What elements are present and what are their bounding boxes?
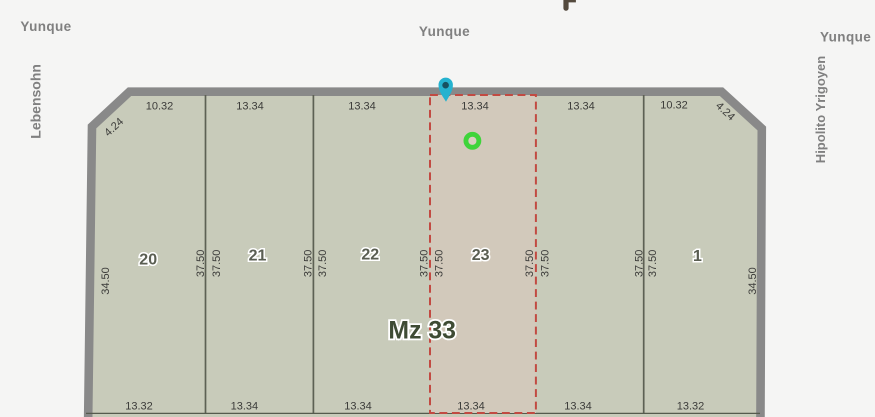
- svg-text:34.50: 34.50: [100, 267, 112, 295]
- svg-text:13.34: 13.34: [564, 401, 592, 413]
- svg-text:13.34: 13.34: [236, 101, 264, 113]
- svg-text:10.32: 10.32: [660, 100, 688, 112]
- svg-text:13.32: 13.32: [125, 401, 153, 413]
- svg-text:Yunque: Yunque: [419, 24, 470, 39]
- svg-text:Mz 33: Mz 33: [388, 318, 456, 345]
- svg-text:13.34: 13.34: [457, 401, 485, 413]
- svg-text:23: 23: [472, 247, 490, 264]
- svg-text:37.50: 37.50: [302, 250, 314, 278]
- svg-text:Hipolito Yrigoyen: Hipolito Yrigoyen: [813, 56, 828, 163]
- svg-text:37.50: 37.50: [317, 250, 329, 278]
- svg-text:34.50: 34.50: [747, 267, 759, 295]
- svg-text:1: 1: [693, 248, 702, 265]
- svg-text:37.50: 37.50: [195, 250, 207, 278]
- svg-text:20: 20: [139, 252, 157, 269]
- svg-text:37.50: 37.50: [634, 250, 646, 278]
- svg-text:10.32: 10.32: [146, 101, 174, 113]
- svg-text:Lebensohn: Lebensohn: [27, 64, 43, 139]
- svg-text:21: 21: [249, 247, 267, 264]
- svg-text:13.32: 13.32: [677, 401, 705, 413]
- svg-text:37.50: 37.50: [524, 250, 536, 278]
- svg-text:37.50: 37.50: [540, 250, 552, 278]
- svg-text:37.50: 37.50: [434, 250, 446, 278]
- svg-text:37.50: 37.50: [418, 250, 430, 278]
- svg-text:Yunque: Yunque: [20, 19, 71, 34]
- svg-text:13.34: 13.34: [461, 101, 489, 113]
- svg-text:22: 22: [361, 246, 379, 263]
- svg-text:37.50: 37.50: [647, 250, 659, 278]
- svg-text:37.50: 37.50: [211, 250, 223, 278]
- svg-text:13.34: 13.34: [231, 401, 259, 413]
- svg-text:13.34: 13.34: [567, 101, 595, 113]
- svg-text:13.34: 13.34: [344, 401, 372, 413]
- svg-text:Yunque: Yunque: [820, 30, 871, 45]
- svg-text:13.34: 13.34: [348, 101, 376, 113]
